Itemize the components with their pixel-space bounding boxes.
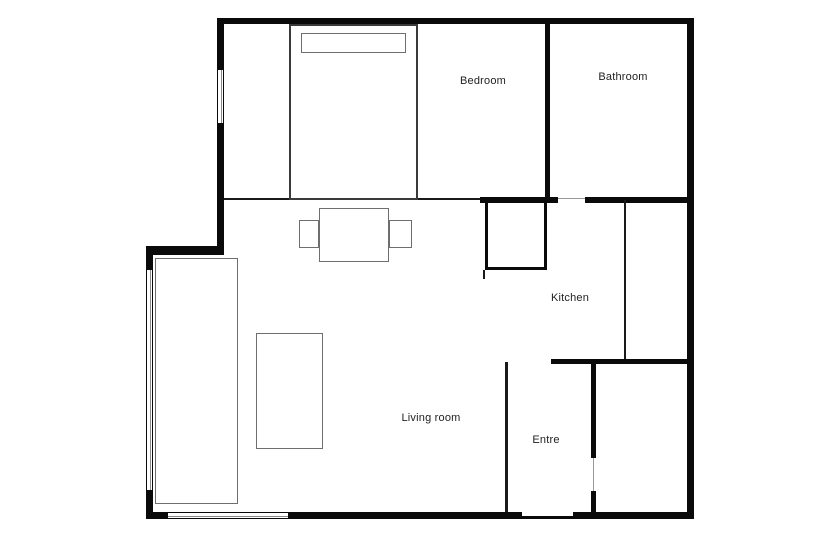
- window-pane-line: [221, 70, 222, 123]
- window-pane-line: [168, 516, 288, 517]
- closet-icon: [485, 200, 547, 270]
- room-label-kitchen: Kitchen: [551, 292, 589, 304]
- wall-entre-right-upper: [591, 362, 596, 458]
- bathroom-door-opening: [558, 198, 585, 199]
- sofa-icon: [155, 258, 238, 504]
- wall-mid-horizontal: [551, 359, 694, 364]
- wall-bedroom-bathroom-divider: [545, 24, 550, 200]
- wall-entre-right-lower: [591, 491, 596, 512]
- entry-door-opening: [522, 512, 573, 516]
- room-label-bathroom: Bathroom: [598, 71, 647, 83]
- dining-chair-right-icon: [389, 220, 412, 248]
- room-label-bedroom: Bedroom: [460, 75, 506, 87]
- living-room-left-window-icon: [147, 270, 152, 490]
- wall-bathroom-south-right: [585, 197, 694, 203]
- wall-kitchen-divider: [624, 200, 626, 362]
- room-label-living-room: Living room: [401, 412, 460, 424]
- wall-left-bedroom: [217, 18, 224, 255]
- room-label-entre: Entre: [532, 434, 559, 446]
- closet-corner-tick: [483, 270, 485, 279]
- wall-right: [687, 18, 694, 519]
- pillow-icon: [301, 33, 406, 53]
- wall-step-living: [146, 246, 224, 255]
- dining-table-icon: [319, 208, 389, 262]
- floorplan-canvas: Bedroom Bathroom Kitchen Living room Ent…: [0, 0, 831, 555]
- living-room-bottom-window-icon: [168, 513, 288, 518]
- wall-entre-left: [505, 362, 508, 512]
- dining-chair-left-icon: [299, 220, 319, 248]
- bedroom-window-icon: [218, 70, 223, 123]
- entre-door-opening: [593, 458, 594, 491]
- coffee-table-icon: [256, 333, 323, 449]
- window-pane-line: [150, 270, 151, 490]
